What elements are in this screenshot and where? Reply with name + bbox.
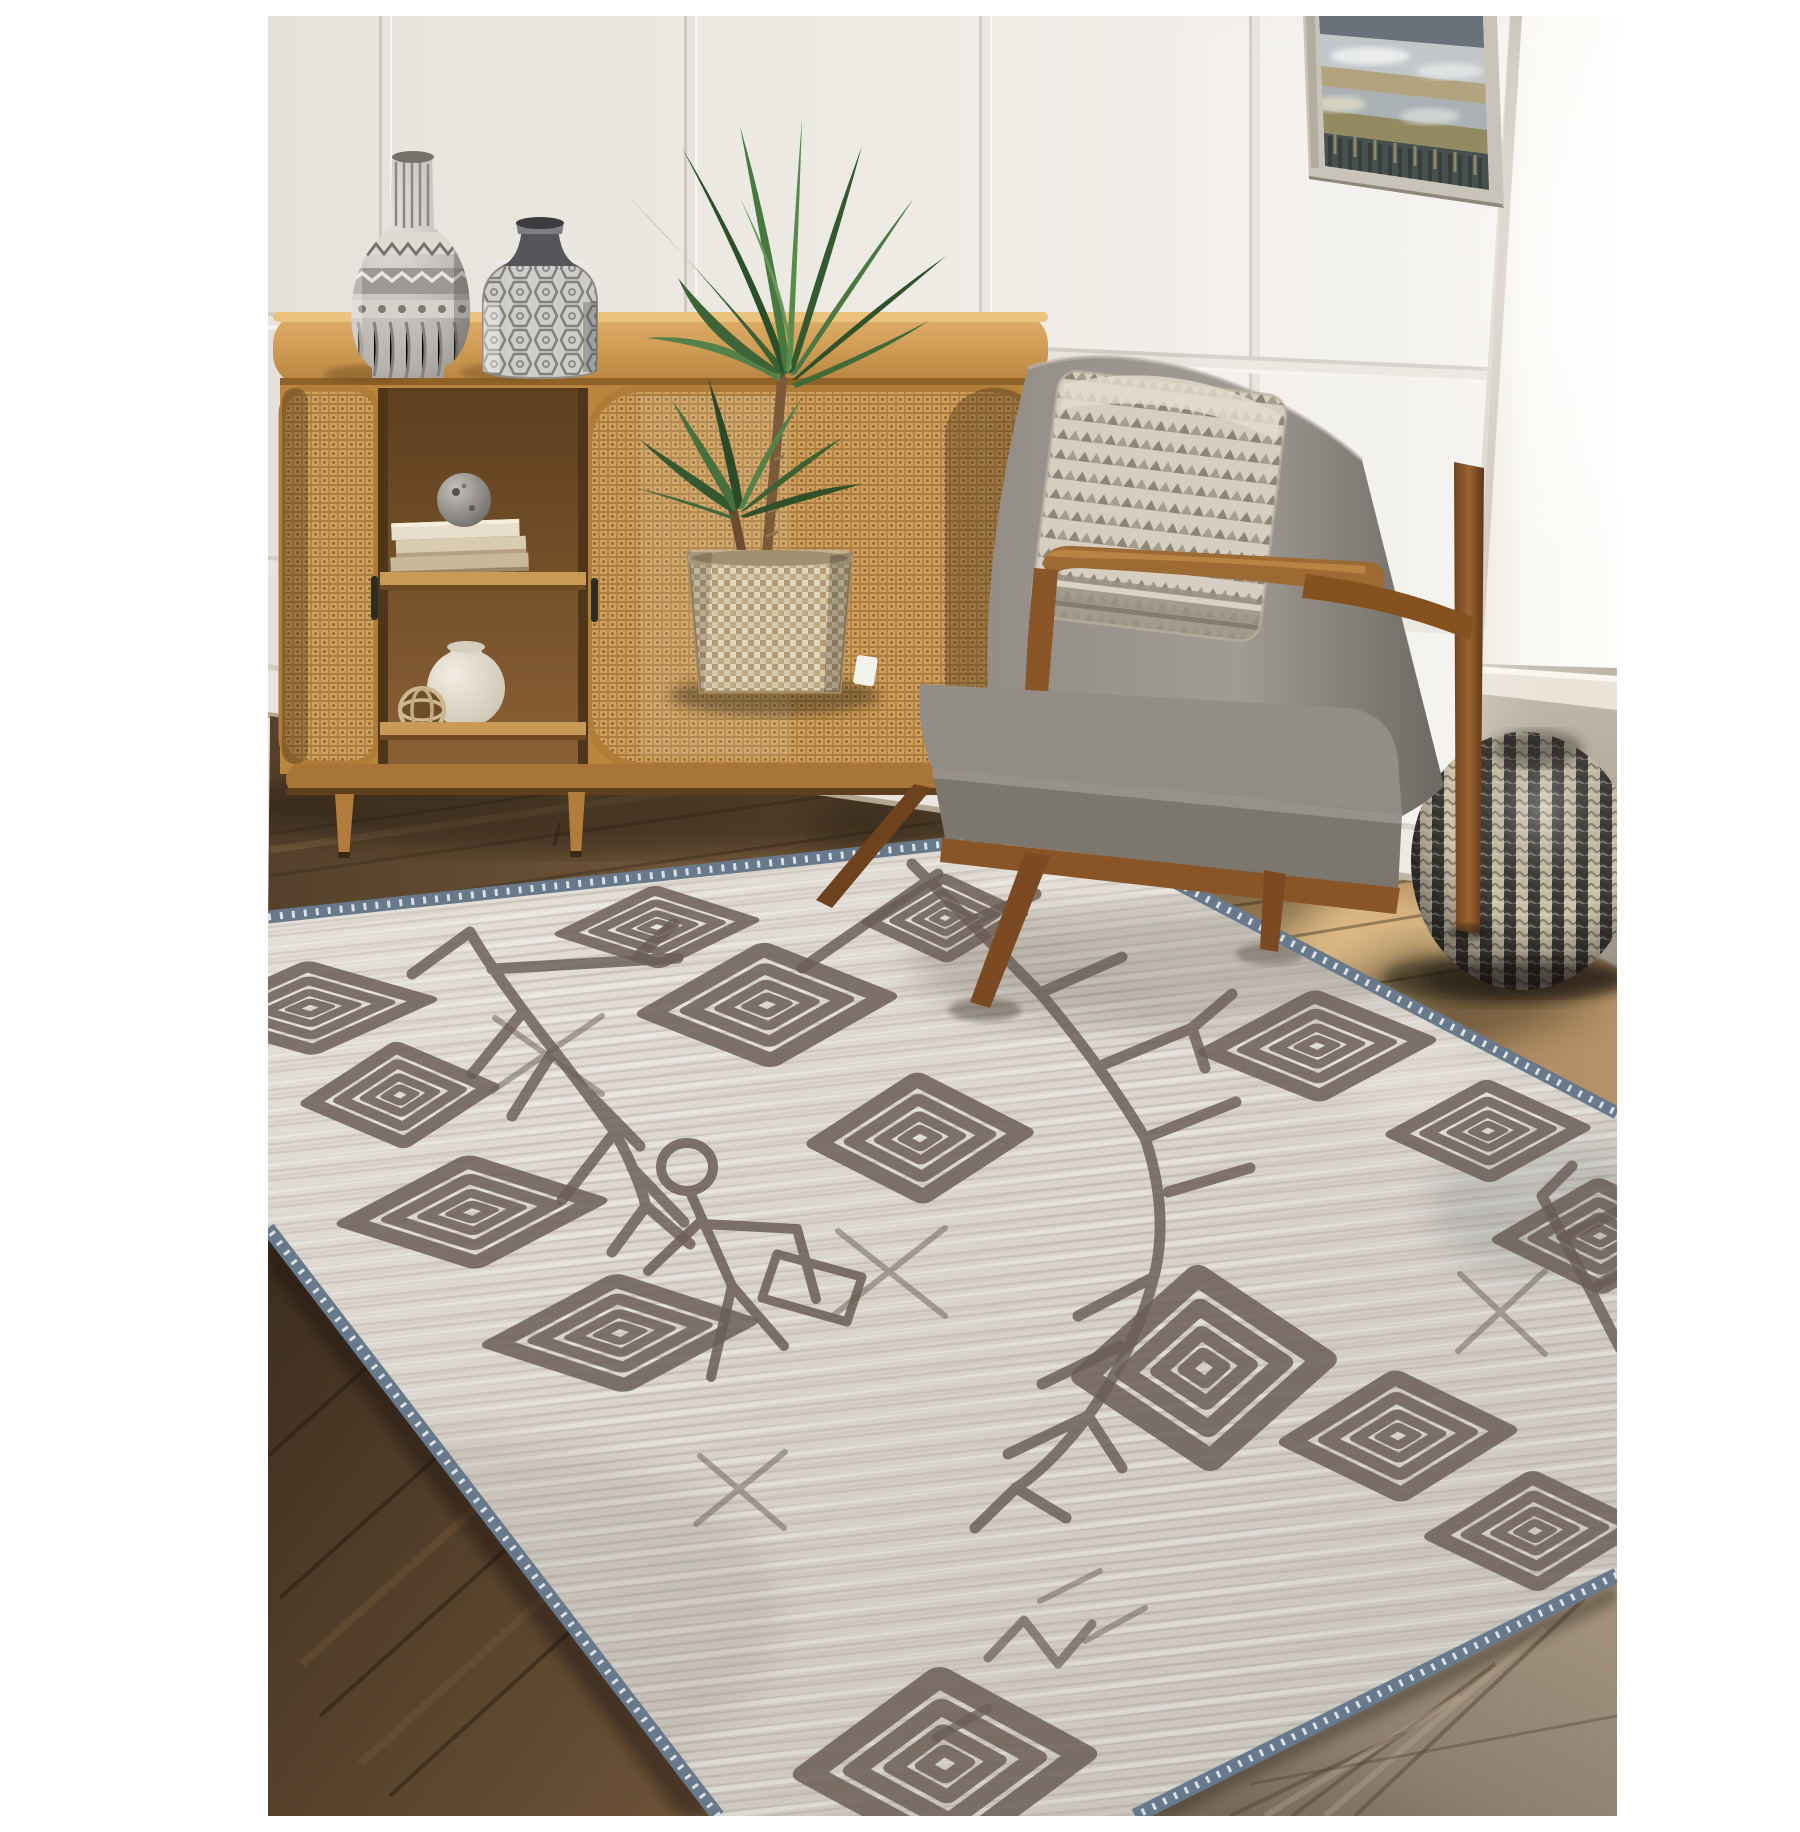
accent-pillow bbox=[1030, 364, 1289, 643]
door-handle-right bbox=[591, 578, 598, 622]
door-handle-left bbox=[371, 576, 378, 620]
mosaic-sphere bbox=[437, 473, 491, 527]
wall-art bbox=[1303, 16, 1504, 208]
product-photo: Bohemian tribal rug staged in a bright l… bbox=[40, 16, 1800, 1816]
photo-margin-left bbox=[40, 16, 268, 1816]
cabinet-door-left bbox=[282, 388, 378, 764]
art-canvas bbox=[1314, 16, 1489, 190]
photo-margin-right bbox=[1617, 16, 1800, 1816]
chair-back-leg bbox=[1454, 462, 1484, 934]
sideboard-cabinet bbox=[273, 312, 1048, 858]
cabinet-shelves bbox=[378, 388, 588, 772]
plant-tag bbox=[853, 655, 878, 687]
books bbox=[389, 519, 529, 576]
